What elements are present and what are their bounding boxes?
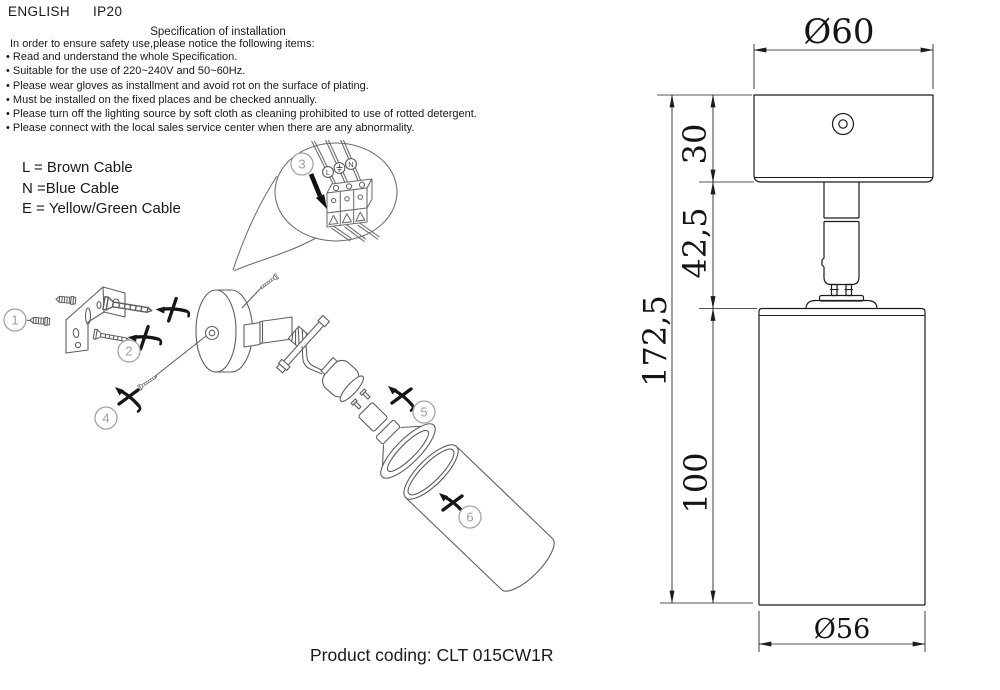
terminal-block: [327, 179, 372, 227]
spec-item: • Please turn off the lighting source by…: [6, 107, 477, 121]
step-badge-number: 1: [11, 313, 18, 328]
step-badge-number: 5: [420, 405, 427, 420]
dim-stem-height: 42,5: [676, 207, 714, 278]
body-side-view: [759, 309, 925, 606]
step-badge-number: 2: [125, 344, 132, 359]
dimension-drawing: Ø60 172,5 30 42,5 100 Ø56: [636, 12, 933, 652]
cable-legend-live: L = Brown Cable: [22, 158, 181, 179]
dim-canopy-height: 30: [676, 124, 714, 165]
spec-intro: In order to ensure safety use,please not…: [10, 38, 315, 50]
installation-spec-sheet: L N 3 1 2 4 5: [0, 0, 1000, 690]
dimension-annotations: Ø60 172,5 30 42,5 100 Ø56: [636, 12, 933, 652]
callout-arrow: [311, 174, 327, 209]
ip-rating-label: IP20: [93, 4, 122, 19]
callout-tail: [233, 176, 277, 270]
canopy-side-view: [754, 95, 933, 182]
exploded-view-diagram: [26, 274, 554, 591]
language-label: ENGLISH: [8, 4, 70, 19]
cable-legend-earth: E = Yellow/Green Cable: [22, 199, 181, 220]
dim-body-height: 100: [677, 452, 715, 513]
swivel-arm-part: [244, 315, 330, 374]
dim-total-height: 172,5: [636, 295, 674, 387]
stem-side-view: [806, 182, 877, 309]
spec-item: • Must be installed on the fixed places …: [6, 93, 477, 107]
terminal-neutral-label: N: [348, 160, 353, 169]
step-badge-number: 4: [102, 411, 109, 426]
spec-item: • Please wear gloves as installment and …: [6, 79, 477, 93]
spec-items-list: • Read and understand the whole Specific…: [6, 50, 477, 136]
terminal-labels: L N: [323, 159, 357, 178]
canopy-screw-part: [137, 374, 158, 391]
spec-item: • Suitable for the use of 220~240V and 5…: [6, 64, 477, 78]
callout-tail: [234, 238, 316, 271]
terminal-live-label: L: [326, 168, 330, 177]
spec-title: Specification of installation: [0, 26, 436, 38]
step-badge-number: 6: [466, 510, 473, 525]
step-badge-number: 3: [298, 157, 305, 172]
wiring-callout: L N 3: [233, 140, 397, 271]
spec-item: • Read and understand the whole Specific…: [6, 50, 477, 64]
spec-item: • Please connect with the local sales se…: [6, 121, 477, 135]
canopy-top-screw-part: [258, 274, 279, 291]
lamp-socket-part: [318, 356, 366, 404]
dim-body-diameter: Ø56: [814, 614, 871, 645]
cable-legend: L = Brown Cable N =Blue Cable E = Yellow…: [22, 158, 181, 220]
dim-canopy-diameter: Ø60: [803, 12, 874, 52]
cable-legend-neutral: N =Blue Cable: [22, 179, 181, 200]
product-coding: Product coding: CLT 015CW1R: [310, 645, 554, 666]
